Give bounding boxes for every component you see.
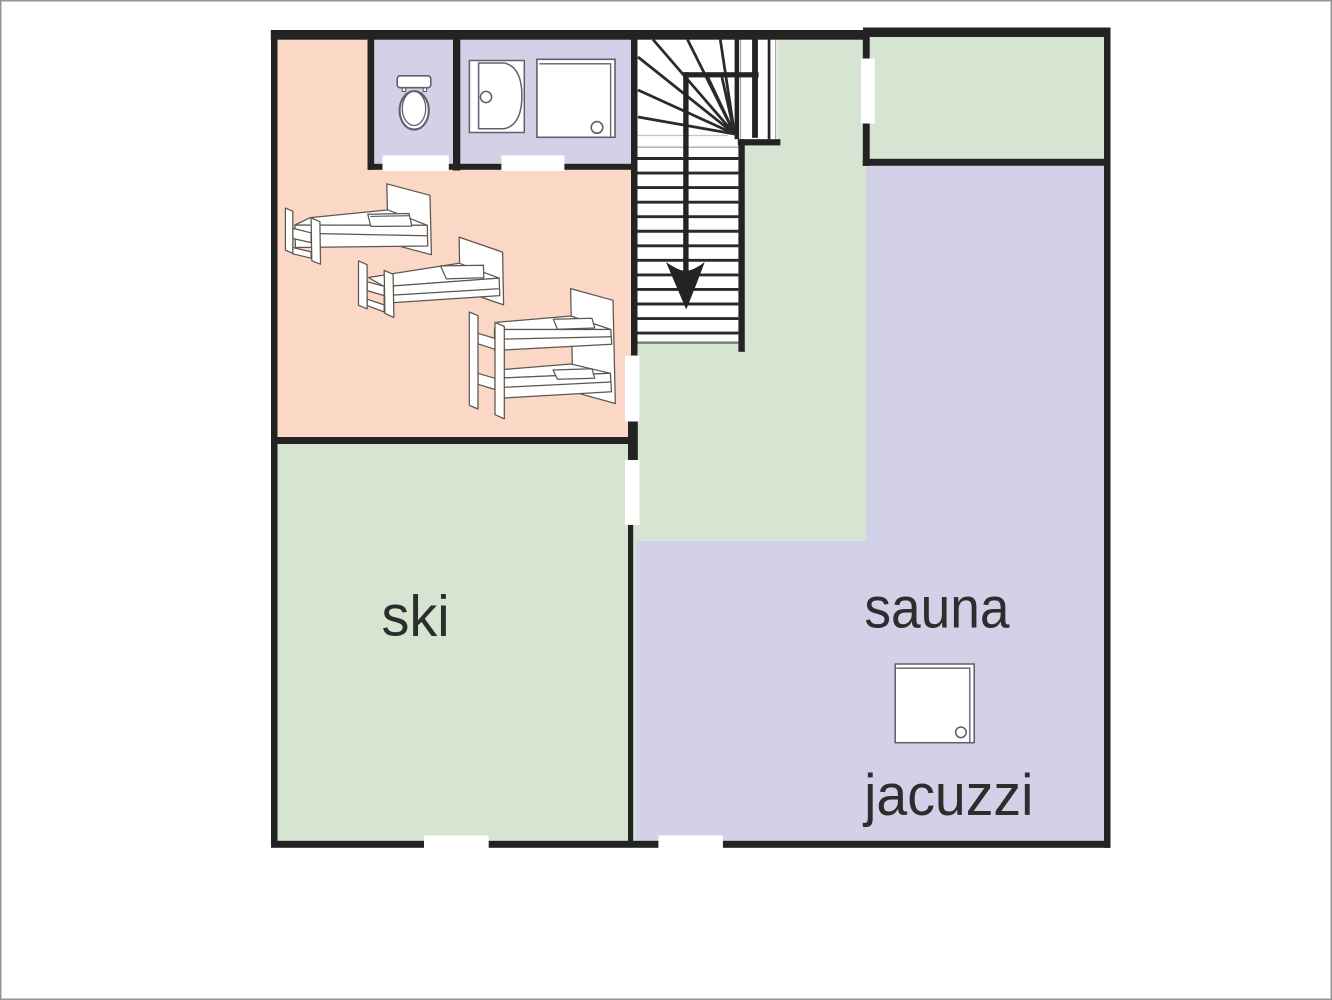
svg-text:ski: ski [382,585,450,649]
svg-text:sauna: sauna [864,575,1009,639]
svg-text:jacuzzi: jacuzzi [862,762,1033,828]
